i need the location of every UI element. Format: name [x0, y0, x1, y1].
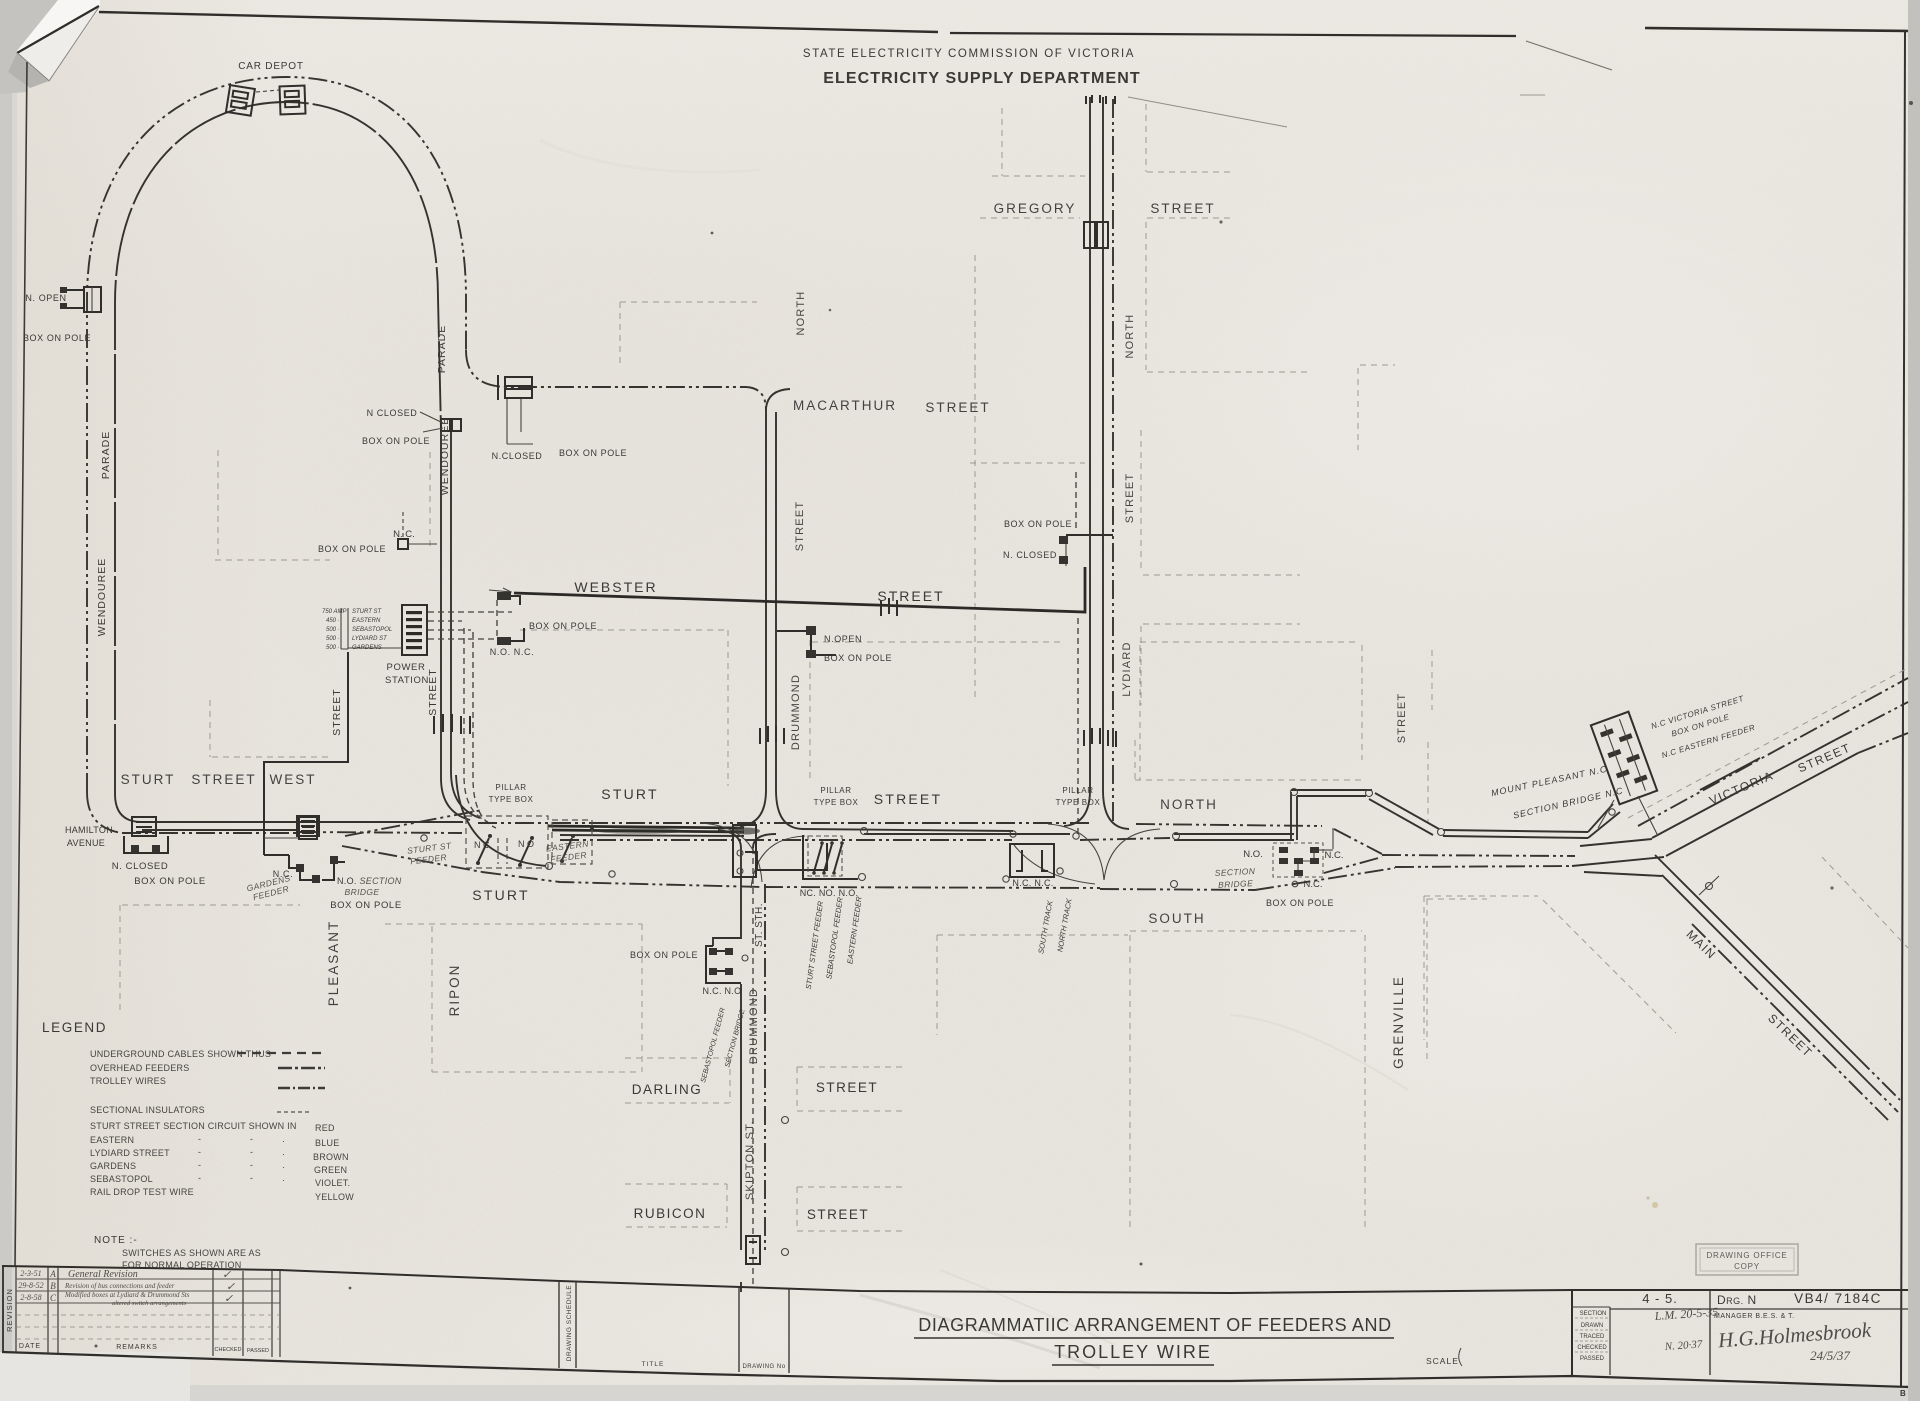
svg-text:DARLING: DARLING — [632, 1082, 703, 1097]
svg-text:N.C. N.O: N.C. N.O — [703, 986, 742, 996]
svg-text:PILLAR: PILLAR — [1062, 786, 1093, 795]
svg-text:SKIPTON ST.: SKIPTON ST. — [744, 1120, 756, 1200]
svg-text:SOUTH: SOUTH — [1148, 911, 1205, 926]
svg-text:BOX ON POLE: BOX ON POLE — [824, 653, 892, 663]
svg-text:29-8-52: 29-8-52 — [18, 1281, 43, 1290]
svg-text:LYDIARD: LYDIARD — [1121, 641, 1133, 696]
svg-text:TROLLEY WIRE: TROLLEY WIRE — [1054, 1342, 1212, 1362]
svg-text:LYDIARD STREET: LYDIARD STREET — [90, 1148, 170, 1158]
svg-text:PILLAR: PILLAR — [820, 786, 851, 795]
svg-text:STREET: STREET — [925, 400, 990, 415]
svg-text:RAIL DROP TEST WIRE: RAIL DROP TEST WIRE — [90, 1187, 194, 1197]
svg-text:BOX ON POLE: BOX ON POLE — [1266, 898, 1334, 908]
svg-text:BOX ON POLE: BOX ON POLE — [330, 900, 402, 911]
svg-text:GREEN: GREEN — [314, 1165, 347, 1175]
svg-text:STREET: STREET — [191, 772, 256, 787]
svg-text:PARADE: PARADE — [436, 325, 448, 373]
svg-text:STREET: STREET — [874, 791, 942, 807]
svg-text:BOX ON POLE: BOX ON POLE — [529, 621, 597, 631]
svg-text:STURT STREET SECTION CIRCUI: STURT STREET SECTION CIRCUIT SHOWN IN — [90, 1121, 297, 1131]
svg-text:TYPE BOX: TYPE BOX — [814, 798, 859, 807]
svg-text:DRAWN: DRAWN — [1581, 1323, 1603, 1329]
svg-text:CAR DEPOT: CAR DEPOT — [238, 61, 304, 72]
svg-text:BRIDGE: BRIDGE — [345, 887, 380, 897]
svg-text:·: · — [282, 1136, 285, 1146]
svg-text:RED: RED — [315, 1123, 335, 1133]
svg-text:-: - — [250, 1134, 253, 1144]
svg-text:BOX ON POLE: BOX ON POLE — [362, 436, 430, 446]
svg-text:POWER: POWER — [387, 662, 426, 673]
svg-text:N. C.: N. C. — [393, 529, 415, 540]
svg-text:-: - — [198, 1160, 201, 1170]
svg-text:BOX ON POLE: BOX ON POLE — [23, 333, 91, 343]
svg-text:altered switch arrangements: altered switch arrangements — [112, 1300, 187, 1307]
svg-text:STURT: STURT — [121, 772, 176, 787]
svg-text:Revision of bus connections an: Revision of bus connections and feeder — [64, 1282, 175, 1290]
svg-text:NORTH: NORTH — [1160, 797, 1218, 812]
svg-text:STREET: STREET — [331, 688, 343, 735]
svg-text:STREET: STREET — [807, 1207, 869, 1222]
svg-text:STREET: STREET — [816, 1080, 878, 1095]
svg-text:✓: ✓ — [222, 1269, 232, 1281]
svg-text:N.O.: N.O. — [1243, 849, 1263, 860]
svg-text:C: C — [50, 1293, 57, 1303]
svg-text:STREET: STREET — [794, 501, 806, 552]
svg-text:SECTIONAL INSULATORS: SECTIONAL INSULATORS — [90, 1105, 205, 1115]
svg-text:BOX ON POLE: BOX ON POLE — [134, 876, 206, 887]
svg-text:Modified boxes at Lydiard & Dr: Modified boxes at Lydiard & Drummond Sts — [64, 1291, 190, 1299]
svg-text:LEGEND: LEGEND — [42, 1020, 107, 1035]
svg-text:N.C.: N.C. — [1325, 850, 1344, 861]
svg-text:PARADE: PARADE — [100, 431, 112, 479]
svg-text:4 - 5.: 4 - 5. — [1642, 1291, 1678, 1306]
svg-text:CHECKED: CHECKED — [215, 1347, 242, 1353]
svg-text:YELLOW: YELLOW — [315, 1192, 354, 1202]
svg-text:DRAWING No: DRAWING No — [742, 1364, 785, 1370]
svg-text:PLEASANT: PLEASANT — [326, 920, 341, 1007]
svg-text:SWITCHES AS SHOWN ARE AS: SWITCHES AS SHOWN ARE AS — [122, 1248, 261, 1258]
svg-text:SCALE: SCALE — [1426, 1356, 1459, 1366]
svg-text:·: · — [282, 1162, 285, 1172]
svg-text:N CLOSED: N CLOSED — [367, 408, 418, 418]
svg-text:OVERHEAD FEEDERS: OVERHEAD FEEDERS — [90, 1063, 190, 1073]
svg-text:N.OPEN: N.OPEN — [824, 634, 862, 644]
svg-text:N. CLOSED: N. CLOSED — [112, 861, 169, 872]
svg-text:N.CLOSED: N.CLOSED — [492, 451, 543, 461]
svg-text:BOX ON POLE: BOX ON POLE — [559, 448, 627, 458]
svg-text:GREGORY: GREGORY — [994, 201, 1077, 216]
svg-text:BOX ON POLE: BOX ON POLE — [318, 544, 386, 554]
svg-text:STURT: STURT — [601, 786, 658, 802]
svg-text:DIAGRAMMATIIC ARRANGEMENT OF: DIAGRAMMATIIC ARRANGEMENT OF FEEDERS AND — [918, 1315, 1391, 1335]
svg-text:RUBICON: RUBICON — [634, 1206, 707, 1221]
svg-text:NC. NO. N.O.: NC. NO. N.O. — [800, 888, 859, 898]
svg-text:WEBSTER: WEBSTER — [574, 579, 657, 595]
svg-text:ELECTRICITY SUPPLY DEPARTMENT: ELECTRICITY SUPPLY DEPARTMENT — [823, 70, 1141, 87]
svg-text:TYPE BOX: TYPE BOX — [1056, 798, 1101, 807]
svg-text:GARDENS: GARDENS — [352, 645, 382, 651]
svg-text:B: B — [1900, 1389, 1906, 1398]
svg-text:500 ·: 500 · — [326, 627, 340, 633]
svg-text:·: · — [282, 1175, 285, 1185]
svg-text:N.O. N.C.: N.O. N.C. — [490, 647, 534, 657]
svg-text:REMARKS: REMARKS — [116, 1344, 158, 1351]
svg-text:WEST: WEST — [270, 772, 317, 787]
svg-text:RIPON: RIPON — [447, 964, 462, 1017]
svg-text:DRG. N: DRG. N — [1717, 1293, 1757, 1307]
svg-text:N O: N O — [518, 839, 534, 849]
svg-text:BROWN: BROWN — [313, 1152, 349, 1162]
svg-text:-: - — [250, 1147, 253, 1157]
svg-text:✓: ✓ — [226, 1281, 236, 1293]
svg-text:A: A — [49, 1269, 56, 1279]
svg-text:VB4/ 7184C: VB4/ 7184C — [1794, 1291, 1882, 1306]
svg-text:✓: ✓ — [224, 1293, 234, 1305]
svg-text:N. OPEN: N. OPEN — [25, 293, 66, 303]
svg-text:STATE ELECTRICITY COMMISSION O: STATE ELECTRICITY COMMISSION OF VICTORIA — [803, 48, 1135, 60]
svg-text:STREET: STREET — [877, 588, 944, 604]
svg-text:TROLLEY WIRES: TROLLEY WIRES — [90, 1076, 166, 1086]
svg-text:SEBASTOPOL: SEBASTOPOL — [90, 1174, 153, 1184]
svg-text:EASTERN: EASTERN — [352, 618, 381, 624]
svg-text:STREET: STREET — [1124, 473, 1136, 524]
svg-text:2-8-58: 2-8-58 — [20, 1293, 41, 1302]
svg-text:STREET: STREET — [1396, 693, 1408, 744]
svg-text:-: - — [250, 1160, 253, 1170]
svg-text:General Revision: General Revision — [68, 1269, 138, 1280]
svg-text:PASSED: PASSED — [1580, 1356, 1605, 1362]
svg-text:STATION: STATION — [385, 675, 429, 686]
svg-text:-: - — [250, 1173, 253, 1183]
svg-text:450 ·: 450 · — [326, 618, 340, 624]
svg-text:500 ·: 500 · — [326, 645, 340, 651]
svg-text:LYDIARD ST: LYDIARD ST — [352, 636, 388, 642]
svg-text:DRAWING SCHEDULE: DRAWING SCHEDULE — [566, 1285, 573, 1362]
svg-text:PASSED: PASSED — [247, 1348, 269, 1354]
svg-text:BOX ON POLE: BOX ON POLE — [1004, 519, 1072, 529]
svg-text:TYPE BOX: TYPE BOX — [489, 795, 534, 804]
svg-text:COPY: COPY — [1734, 1262, 1760, 1271]
svg-text:EASTERN: EASTERN — [90, 1135, 134, 1145]
svg-text:NORTH: NORTH — [795, 291, 807, 336]
svg-text:TITLE: TITLE — [642, 1361, 665, 1368]
svg-text:MANAGER B.E.S. & T.: MANAGER B.E.S. & T. — [1714, 1313, 1795, 1320]
svg-text:WENDOUREE: WENDOUREE — [439, 417, 451, 495]
svg-text:BLUE: BLUE — [315, 1138, 340, 1148]
svg-text:STURT: STURT — [472, 887, 529, 903]
svg-text:SECTION: SECTION — [1580, 1311, 1607, 1317]
svg-text:WENDOUREE: WENDOUREE — [96, 558, 108, 636]
svg-text:VIOLET.: VIOLET. — [315, 1178, 350, 1188]
svg-text:REVISION: REVISION — [5, 1288, 14, 1332]
svg-text:BRIDGE: BRIDGE — [1218, 878, 1253, 890]
svg-text:AVENUE: AVENUE — [67, 838, 105, 848]
svg-text:500 ·: 500 · — [326, 636, 340, 642]
svg-text:·: · — [282, 1149, 285, 1159]
svg-text:DRUMMOND: DRUMMOND — [748, 988, 760, 1064]
svg-text:24/5/37: 24/5/37 — [1810, 1348, 1850, 1363]
svg-text:HAMILTON: HAMILTON — [65, 825, 113, 835]
svg-text:N.O. SECTION: N.O. SECTION — [337, 876, 402, 886]
svg-text:PILLAR: PILLAR — [495, 783, 526, 792]
svg-text:NOTE :-: NOTE :- — [94, 1235, 138, 1246]
svg-text:GARDENS: GARDENS — [90, 1161, 136, 1171]
svg-text:TRACED: TRACED — [1580, 1334, 1605, 1340]
svg-text:NORTH: NORTH — [1124, 314, 1136, 359]
svg-text:750 AMP: 750 AMP — [322, 609, 346, 615]
svg-text:N. CLOSED: N. CLOSED — [1003, 550, 1057, 560]
svg-text:BOX ON POLE: BOX ON POLE — [630, 950, 698, 960]
svg-text:ST. STH.: ST. STH. — [754, 903, 765, 947]
svg-text:2-3-51: 2-3-51 — [20, 1269, 41, 1278]
svg-text:B: B — [50, 1281, 56, 1291]
svg-text:STURT ST: STURT ST — [352, 609, 383, 615]
svg-text:-: - — [198, 1173, 201, 1183]
svg-text:DATE: DATE — [19, 1343, 41, 1350]
svg-text:CHECKED: CHECKED — [1577, 1345, 1607, 1351]
svg-text:N.C. N.C.: N.C. N.C. — [1012, 878, 1053, 888]
svg-text:SEBASTOPOL: SEBASTOPOL — [352, 627, 392, 633]
svg-text:N.C.: N.C. — [1304, 879, 1323, 890]
svg-text:N C.: N C. — [474, 840, 492, 850]
svg-text:MACARTHUR: MACARTHUR — [793, 398, 897, 413]
svg-text:STREET: STREET — [1150, 201, 1215, 216]
svg-text:-: - — [198, 1134, 201, 1144]
svg-text:DRUMMOND: DRUMMOND — [790, 674, 802, 750]
svg-text:DRAWING OFFICE: DRAWING OFFICE — [1706, 1251, 1787, 1260]
svg-text:-: - — [198, 1147, 201, 1157]
svg-text:GRENVILLE: GRENVILLE — [1391, 975, 1406, 1069]
